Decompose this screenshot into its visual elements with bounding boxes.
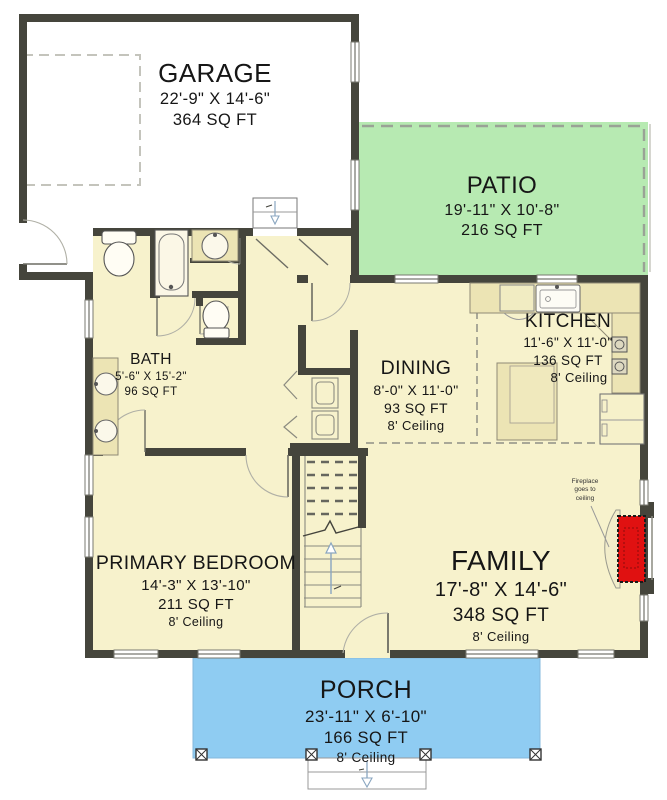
garage-landing-steps — [253, 198, 297, 228]
room-name: KITCHEN — [408, 311, 667, 333]
floor-plan: GARAGE 22'-9" X 14'-6" 364 SQ FT PATIO 1… — [0, 0, 667, 800]
room-area: 93 SQ FT — [256, 400, 576, 416]
room-ceiling: 8' Ceiling — [256, 418, 576, 433]
bath-label: BATH 5'-6" X 15'-2" 96 SQ FT — [0, 349, 311, 402]
room-ceiling: 8' Ceiling — [341, 629, 661, 644]
family-label: FAMILY 17'-8" X 14'-6" 348 SQ FT 8' Ceil… — [341, 543, 661, 646]
room-area: 364 SQ FT — [55, 111, 375, 130]
room-dims: 5'-6" X 15'-2" — [0, 371, 311, 384]
room-dims: 14'-3" X 13'-10" — [36, 577, 356, 594]
fireplace-note-line: goes to — [550, 486, 620, 494]
room-name: BATH — [0, 351, 311, 369]
room-ceiling: 8' Ceiling — [36, 615, 356, 630]
patio-label: PATIO 19'-11" X 10'-8" 216 SQ FT — [342, 170, 662, 243]
fireplace-note-line: ceiling — [550, 495, 620, 503]
room-area: 96 SQ FT — [0, 386, 311, 399]
primary-bedroom-label: PRIMARY BEDROOM 14'-3" X 13'-10" 211 SQ … — [36, 550, 356, 632]
front-door-threshold — [345, 650, 390, 658]
room-dims: 23'-11" X 6'-10" — [206, 707, 526, 727]
kitchen-sink-icon — [536, 285, 580, 312]
room-name: PRIMARY BEDROOM — [36, 552, 356, 575]
room-ceiling: 8' Ceiling — [206, 750, 526, 766]
room-dims: 17'-8" X 14'-6" — [341, 579, 661, 602]
toilet-icon — [102, 231, 136, 276]
room-name: GARAGE — [55, 58, 375, 88]
room-dims: 11'-6" X 11'-0" — [408, 335, 667, 351]
room-dims: 22'-9" X 14'-6" — [55, 90, 375, 109]
room-area: 211 SQ FT — [36, 596, 356, 613]
room-name: PATIO — [342, 172, 662, 200]
room-area: 348 SQ FT — [341, 605, 661, 627]
room-area: 216 SQ FT — [342, 222, 662, 241]
fireplace-note-line: Fireplace — [550, 478, 620, 486]
room-name: PORCH — [206, 676, 526, 705]
bath-vanity-sink-icon — [192, 230, 238, 261]
water-closet-toilet-icon — [203, 301, 229, 338]
refrigerator-icon — [600, 394, 644, 444]
porch-label: PORCH 23'-11" X 6'-10" 166 SQ FT 8' Ceil… — [206, 674, 526, 768]
room-dims: 19'-11" X 10'-8" — [342, 202, 662, 221]
room-name: FAMILY — [341, 545, 661, 577]
room-area: 166 SQ FT — [206, 729, 526, 748]
fireplace-note: Fireplace goes to ceiling — [550, 478, 620, 503]
garage-label: GARAGE 22'-9" X 14'-6" 364 SQ FT — [55, 56, 375, 132]
bathtub-icon — [155, 230, 188, 296]
